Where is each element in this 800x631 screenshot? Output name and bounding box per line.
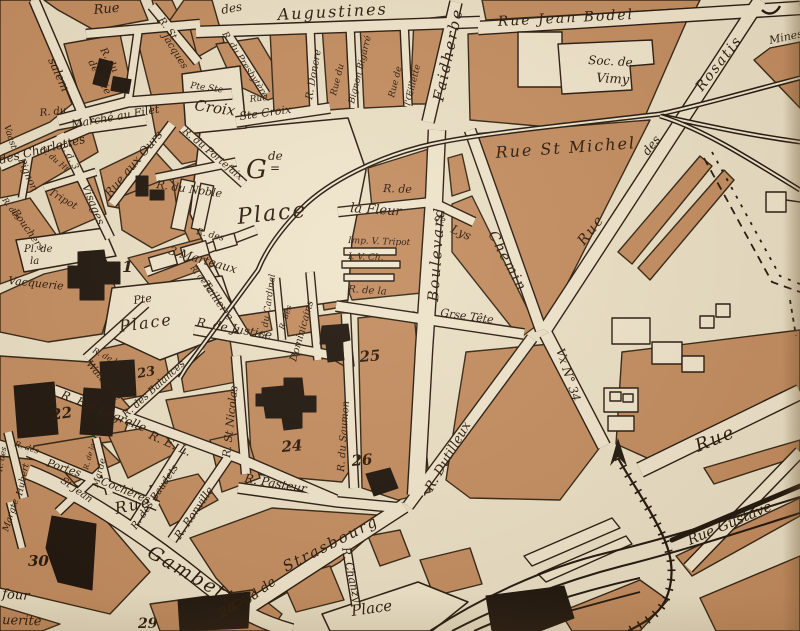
label-number-25: 25 <box>358 346 381 366</box>
place-label-vacquerie-2: la <box>30 256 39 267</box>
monument-building <box>111 77 131 94</box>
white-building <box>623 394 633 402</box>
place-label-gde-g: G <box>246 155 267 185</box>
white-building <box>612 318 650 344</box>
street-label-four: four <box>1 587 31 604</box>
label-number-22: 22 <box>49 403 73 424</box>
street-label-rosatis: Rosatis <box>692 33 746 95</box>
label-number-24: 24 <box>280 436 303 456</box>
white-building <box>344 274 394 281</box>
white-building <box>716 304 730 317</box>
street-label-uerite: uerite <box>2 613 42 629</box>
white-building <box>652 342 682 364</box>
city-block <box>560 580 668 631</box>
label-number-1: 1 <box>122 257 133 276</box>
city-block <box>448 154 470 196</box>
building-tail-line <box>786 200 800 202</box>
city-block <box>700 556 800 631</box>
city-block <box>754 42 800 108</box>
white-building <box>700 316 714 328</box>
street-label-des-augustines-1: des <box>220 0 243 17</box>
white-building <box>682 356 704 372</box>
street-label-ivch: I. V. Ch. <box>347 252 384 263</box>
white-building <box>608 416 634 431</box>
street-label-rue-top: Rue <box>92 1 120 18</box>
monument-building <box>136 176 148 196</box>
white-building <box>610 392 621 401</box>
city-block <box>368 530 410 566</box>
place-label-pte-1: Pte <box>132 291 153 307</box>
building-label-vimy-1: Soc. de <box>588 53 633 69</box>
white-building <box>518 32 562 87</box>
vintage-city-map: Rue salem des Charlottes R. St Jacques R… <box>0 0 800 631</box>
map-canvas[interactable]: Rue salem des Charlottes R. St Jacques R… <box>0 0 800 631</box>
label-number-30: 30 <box>28 552 49 570</box>
street-label-fleur-1: R. de <box>382 182 413 196</box>
place-label-gde-eq: = <box>270 161 280 175</box>
white-building <box>766 192 786 212</box>
street-label-rue-sc: Rue <box>248 93 268 105</box>
label-number-26: 26 <box>350 450 374 470</box>
label-number-29: 29 <box>137 616 158 631</box>
building-label-vimy-2: Vimy <box>596 71 630 88</box>
